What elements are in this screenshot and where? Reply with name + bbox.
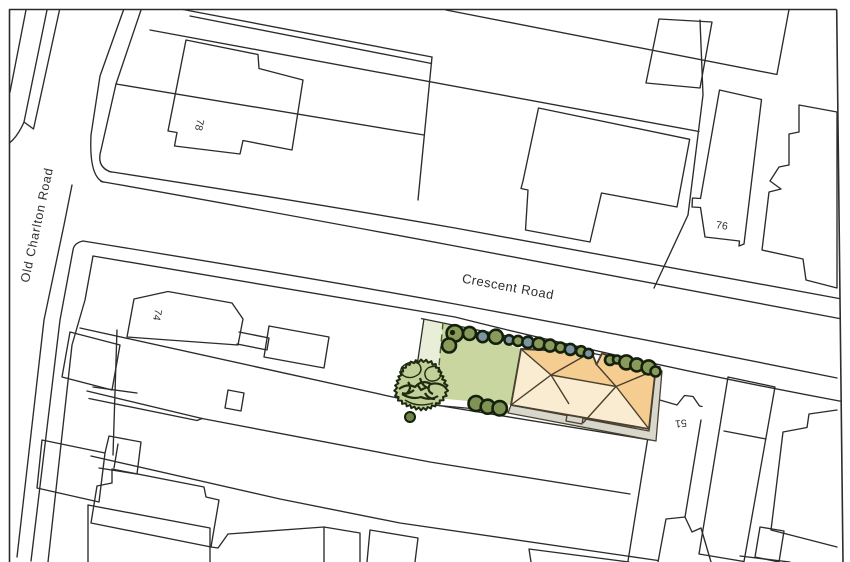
svg-text:76: 76 [715,219,728,233]
svg-text:51: 51 [674,416,687,429]
